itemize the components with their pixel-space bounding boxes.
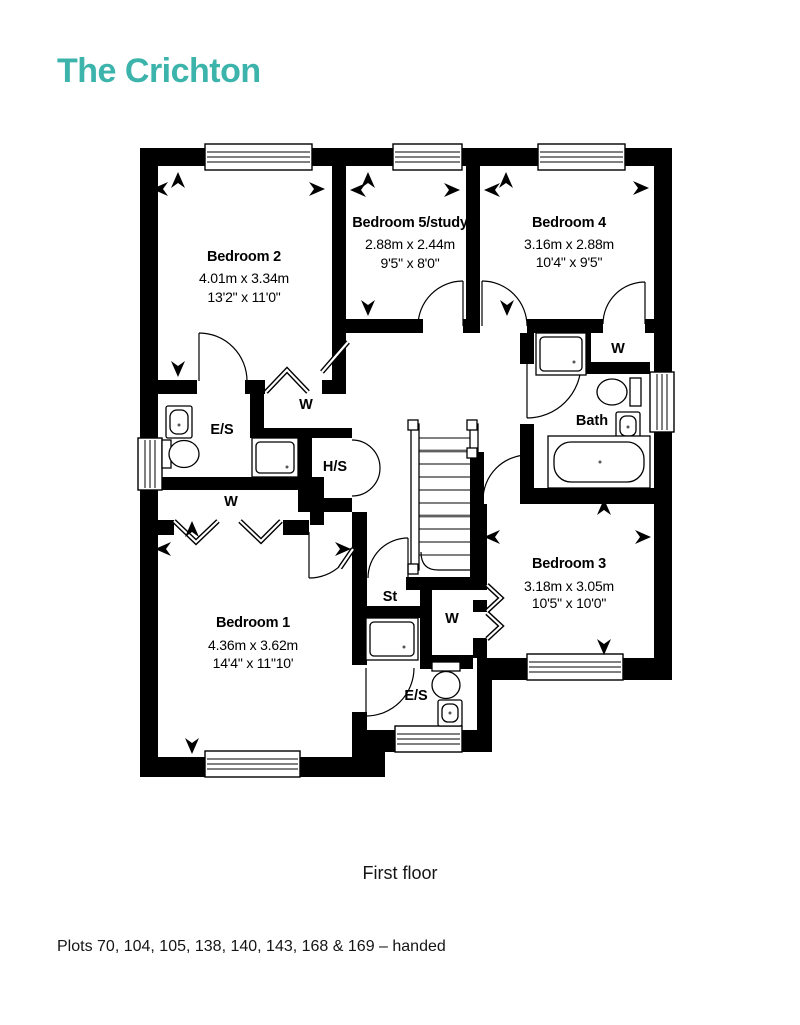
window-ensuite-left (138, 438, 162, 490)
hotwater-label: H/S (323, 459, 348, 475)
bedroom2-imperial: 13'2" x 11'0" (207, 289, 280, 305)
bath-toilet (597, 378, 641, 406)
window-bedroom4 (538, 144, 625, 170)
door-wardrobe-bedroom4 (603, 282, 645, 324)
store-label: St (383, 589, 398, 605)
bedroom4-name: Bedroom 4 (532, 215, 606, 231)
bedroom3-metric: 3.18m x 3.05m (524, 578, 614, 594)
door-hotwater-store (352, 440, 380, 496)
door-store (368, 538, 408, 578)
wardrobe-label-1: W (299, 397, 313, 413)
ensuite2-shower (366, 618, 418, 660)
ensuite-shower (252, 438, 298, 477)
bedroom1-name: Bedroom 1 (216, 615, 290, 631)
floor-caption: First floor (0, 863, 800, 884)
ensuite-sink (166, 406, 192, 438)
bedroom5-name: Bedroom 5/study (352, 215, 468, 231)
ensuite-toilet (162, 440, 199, 468)
bedroom1-imperial: 14'4" x 11"10' (213, 655, 294, 671)
window-bedroom3 (527, 654, 623, 680)
bedroom4-imperial: 10'4" x 9'5" (536, 254, 603, 270)
window-ensuite-bottom (395, 726, 462, 752)
wardrobe-label-3: W (611, 341, 625, 357)
plots-footnote: Plots 70, 104, 105, 138, 140, 143, 168 &… (57, 938, 446, 956)
ensuite2-toilet (432, 662, 460, 699)
window-bedroom5 (393, 144, 462, 170)
wardrobe-label-2: W (224, 494, 238, 510)
bedroom4-metric: 3.16m x 2.88m (524, 236, 614, 252)
staircase (408, 420, 478, 574)
bath-label: Bath (576, 413, 608, 429)
bathtub (548, 436, 650, 488)
brochure-page: The Crichton (0, 0, 800, 1025)
bath-shower (536, 333, 586, 375)
bedroom2-metric: 4.01m x 3.34m (199, 270, 289, 286)
wardrobe-label-4: W (445, 611, 459, 627)
page-title: The Crichton (57, 52, 261, 91)
door-bedroom2 (199, 333, 247, 381)
bedroom3-imperial: 10'5" x 10'0" (532, 595, 606, 611)
bedroom5-metric: 2.88m x 2.44m (365, 236, 455, 252)
bedroom5-imperial: 9'5" x 8'0" (380, 255, 439, 271)
ensuite2-sink (438, 700, 462, 726)
ensuite2-label: E/S (404, 688, 428, 704)
door-bedroom5 (418, 281, 463, 326)
window-bath-right (650, 372, 674, 432)
ensuite-label: E/S (210, 422, 234, 438)
bedroom1-metric: 4.36m x 3.62m (208, 637, 298, 653)
window-bedroom2 (205, 144, 312, 170)
bedroom3-name: Bedroom 3 (532, 556, 606, 572)
window-bedroom1 (205, 751, 300, 777)
bedroom2-name: Bedroom 2 (207, 249, 281, 265)
